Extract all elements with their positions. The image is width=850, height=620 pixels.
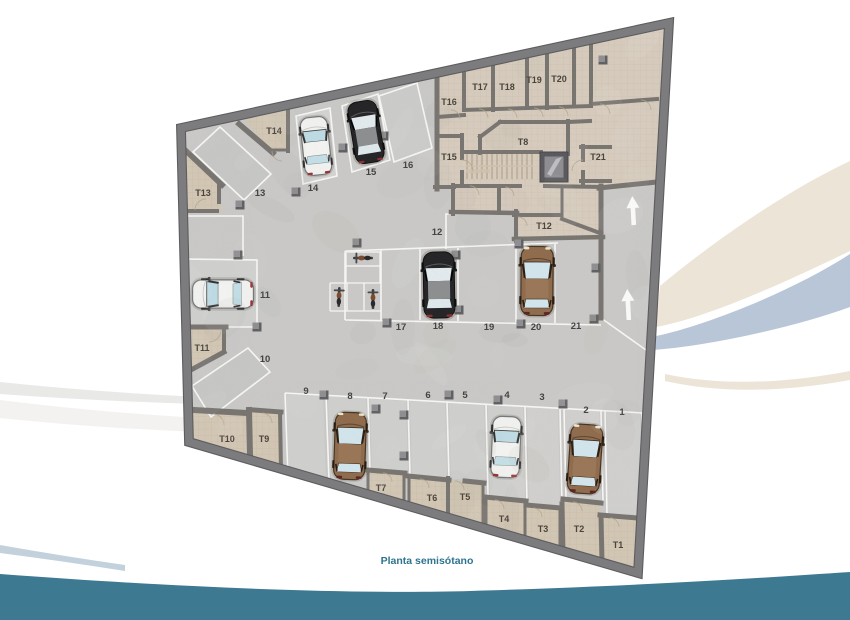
svg-text:Planta semisótano: Planta semisótano xyxy=(381,555,474,567)
